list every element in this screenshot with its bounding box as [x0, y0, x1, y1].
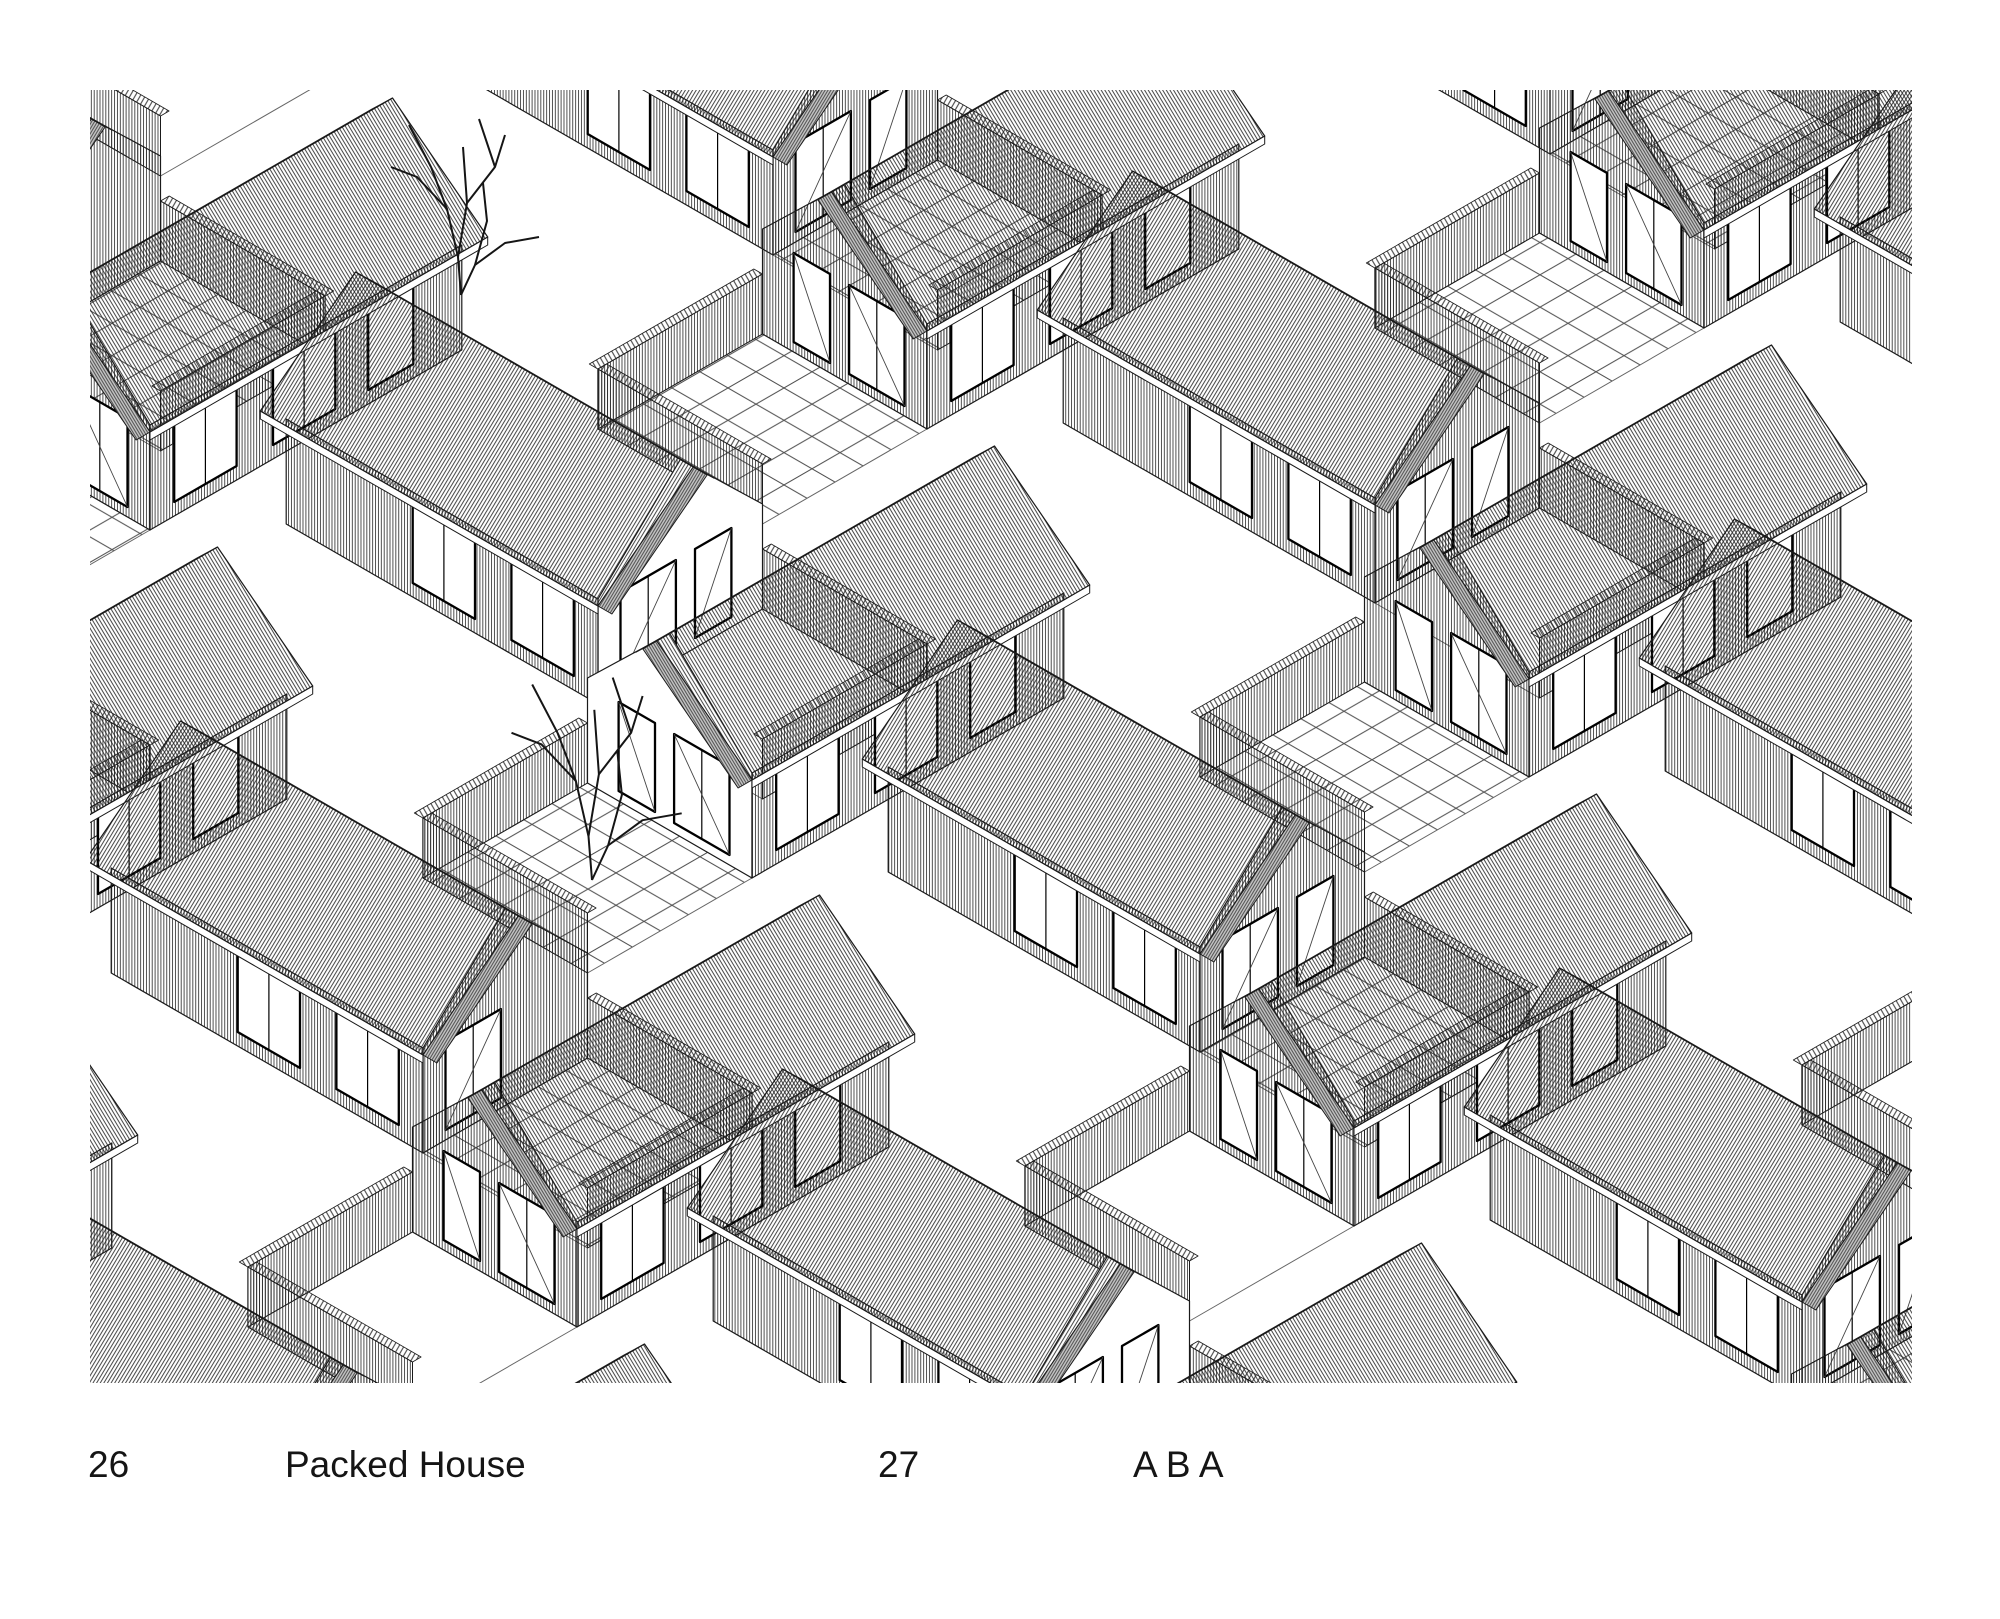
axonometric-drawing	[0, 0, 2000, 1619]
page-number-left: 26	[88, 1444, 129, 1486]
page-title-right: A B A	[1133, 1444, 1224, 1486]
page-title-left: Packed House	[285, 1444, 526, 1486]
book-page: 26 Packed House 27 A B A	[0, 0, 2000, 1619]
page-number-right: 27	[878, 1444, 919, 1486]
axonometric-figure	[0, 0, 2000, 1619]
